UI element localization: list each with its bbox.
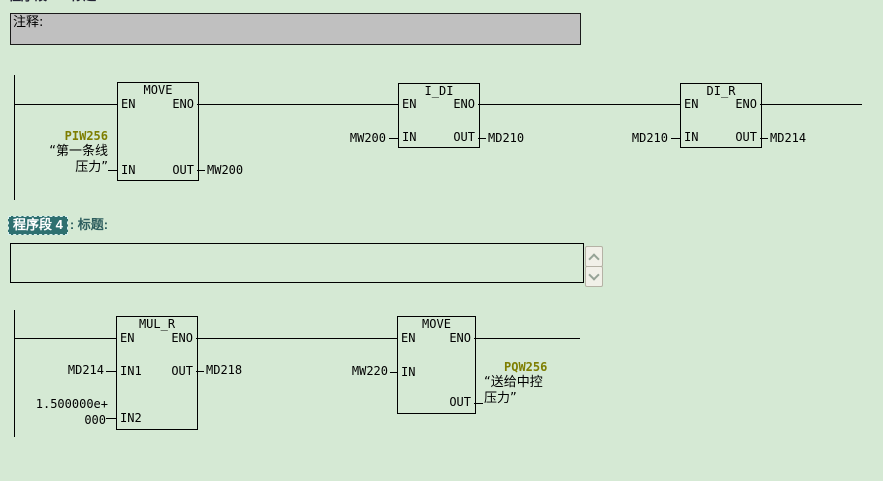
network-title-input[interactable] <box>10 243 584 283</box>
network4-header-suffix: : 标题: <box>70 217 108 232</box>
i-di-block[interactable]: I_DI EN ENO IN OUT <box>398 83 480 148</box>
rung-wire <box>197 104 398 105</box>
pin-eno: ENO <box>453 98 475 111</box>
scroll-up-button[interactable] <box>585 246 603 267</box>
power-rail <box>14 310 15 437</box>
pin-in: IN <box>401 366 415 379</box>
operand-mw200-out[interactable]: MW200 <box>207 164 243 177</box>
pin-stub-wire <box>389 138 398 139</box>
rung-wire <box>760 104 862 105</box>
pin-in2: IN2 <box>120 412 142 425</box>
block-title: MOVE <box>118 84 198 97</box>
operand-md218-out[interactable]: MD218 <box>206 364 242 377</box>
pin-out: OUT <box>172 164 194 177</box>
pin-in: IN <box>402 131 416 144</box>
operand-comment-line2: 压力” <box>484 391 594 407</box>
operand-comment-line2: 压力” <box>14 160 108 176</box>
di-r-block[interactable]: DI_R EN ENO IN OUT <box>680 83 762 148</box>
chevron-up-icon <box>588 253 599 264</box>
operand-md214-out[interactable]: MD214 <box>770 132 806 145</box>
constant-line2: 000 <box>18 412 108 428</box>
pin-stub-wire <box>108 170 117 171</box>
pin-out: OUT <box>449 396 471 409</box>
scroll-down-button[interactable] <box>585 266 603 287</box>
rung-wire <box>196 338 397 339</box>
pin-eno: ENO <box>171 332 193 345</box>
block-title: MOVE <box>398 318 475 331</box>
operand-pqw256[interactable]: PQW256 “送给中控 压力” <box>484 359 594 407</box>
pin-in: IN <box>121 164 135 177</box>
network3-header-clipped[interactable]: 程序段 3: 标题: <box>8 0 102 5</box>
pin-out: OUT <box>735 131 757 144</box>
pin-en: EN <box>684 98 698 111</box>
operand-md210-in[interactable]: MD210 <box>618 132 668 145</box>
constant-in2-value[interactable]: 1.500000e+ 000 <box>18 396 108 428</box>
pin-eno: ENO <box>172 98 194 111</box>
pin-stub-wire <box>196 371 204 372</box>
rung-wire <box>14 104 117 105</box>
rung-wire <box>14 338 116 339</box>
network4-badge[interactable]: 程序段 4 <box>8 216 68 235</box>
pin-stub-wire <box>478 138 486 139</box>
operand-address[interactable]: PIW256 <box>14 128 108 144</box>
network4-header: 程序段 4: 标题: <box>8 214 108 235</box>
pin-en: EN <box>401 332 415 345</box>
mul-r-block[interactable]: MUL_R EN ENO IN1 OUT IN2 <box>116 316 198 430</box>
pin-eno: ENO <box>449 332 471 345</box>
constant-line1: 1.500000e+ <box>18 396 108 412</box>
operand-mw200-in[interactable]: MW200 <box>336 132 386 145</box>
pin-stub-wire <box>390 372 397 373</box>
operand-md210-out[interactable]: MD210 <box>488 132 524 145</box>
comment-label: 注释: <box>13 15 43 31</box>
pin-en: EN <box>120 332 134 345</box>
pin-stub-wire <box>197 170 205 171</box>
pin-en: EN <box>402 98 416 111</box>
rung-wire <box>478 104 680 105</box>
pin-stub-wire <box>760 138 768 139</box>
pin-in1: IN1 <box>120 365 142 378</box>
move-block-2[interactable]: MOVE EN ENO IN OUT <box>397 316 476 414</box>
pin-out: OUT <box>453 131 475 144</box>
pin-eno: ENO <box>735 98 757 111</box>
operand-piw256[interactable]: PIW256 “第一条线 压力” <box>14 128 108 176</box>
chevron-down-icon <box>588 269 599 280</box>
block-title: MUL_R <box>117 318 197 331</box>
operand-mw220-in[interactable]: MW220 <box>340 365 388 378</box>
move-block-1[interactable]: MOVE EN ENO IN OUT <box>117 82 199 181</box>
operand-comment-line1: “第一条线 <box>14 144 108 160</box>
rung-wire <box>474 338 580 339</box>
operand-address[interactable]: PQW256 <box>484 359 594 375</box>
pin-in: IN <box>684 131 698 144</box>
pin-out: OUT <box>171 365 193 378</box>
pin-stub-wire <box>106 371 116 372</box>
operand-comment-line1: “送给中控 <box>484 375 594 391</box>
pin-stub-wire <box>474 403 483 404</box>
pin-stub-wire <box>106 418 116 419</box>
network-comment-box[interactable]: 注释: <box>10 13 581 45</box>
pin-en: EN <box>121 98 135 111</box>
lad-editor-canvas: 程序段 3: 标题: 注释: MOVE EN ENO IN OUT PIW256… <box>0 0 883 481</box>
operand-md214-in1[interactable]: MD214 <box>54 364 104 377</box>
pin-stub-wire <box>671 138 680 139</box>
